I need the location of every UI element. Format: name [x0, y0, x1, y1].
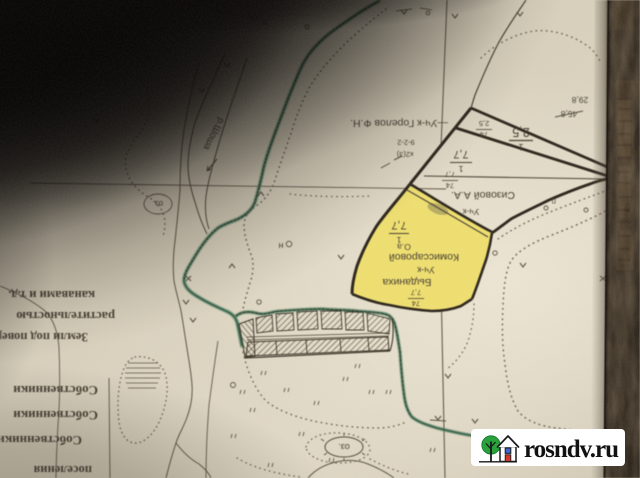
- svg-text:7,7: 7,7: [411, 288, 421, 297]
- svg-text:1: 1: [518, 142, 523, 152]
- svg-text:О.а: О.а: [397, 242, 411, 252]
- svg-text:Уч-к: Уч-к: [463, 207, 480, 217]
- svg-text:п: п: [552, 197, 556, 206]
- svg-text:Сизовой А.А.: Сизовой А.А.: [451, 189, 515, 201]
- svg-text:74: 74: [446, 181, 454, 190]
- svg-text:к2(3): к2(3): [396, 150, 413, 159]
- svg-text:оз.: оз.: [153, 199, 163, 208]
- svg-text:74: 74: [480, 130, 488, 139]
- svg-text:1: 1: [458, 164, 463, 174]
- svg-text:74: 74: [412, 299, 420, 308]
- svg-text:р.Шоша: р.Шоша: [200, 116, 226, 153]
- svg-text:Комиссаровой: Комиссаровой: [389, 251, 459, 263]
- svg-text:Быданиха: Быданиха: [382, 276, 431, 288]
- svg-text:Собственники: Собственники: [13, 383, 98, 398]
- svg-text:7,7: 7,7: [445, 170, 455, 179]
- svg-text:2,5: 2,5: [479, 119, 489, 128]
- svg-text:канавами и т.д.: канавами и т.д.: [8, 288, 95, 302]
- svg-text:9-2-2: 9-2-2: [397, 138, 415, 147]
- svg-text:поселения: поселения: [33, 463, 92, 477]
- svg-text:2,5: 2,5: [512, 125, 529, 139]
- svg-text:н: н: [278, 241, 283, 251]
- svg-text:Собственники: Собственники: [0, 433, 82, 448]
- svg-text:Земли под повер: Земли под повер: [0, 330, 88, 344]
- svg-text:оз.: оз.: [338, 442, 350, 452]
- svg-text:29,8: 29,8: [571, 95, 588, 105]
- svg-text:Уч-к: Уч-к: [417, 265, 434, 275]
- svg-text:растительностью: растительностью: [16, 309, 115, 323]
- svg-text:7,7: 7,7: [453, 148, 468, 160]
- svg-text:Собственники: Собственники: [13, 408, 98, 423]
- svg-text:—Уч-к Горелов Ф.Н.: —Уч-к Горелов Ф.Н.: [350, 117, 448, 129]
- svg-text:7,7: 7,7: [391, 219, 406, 231]
